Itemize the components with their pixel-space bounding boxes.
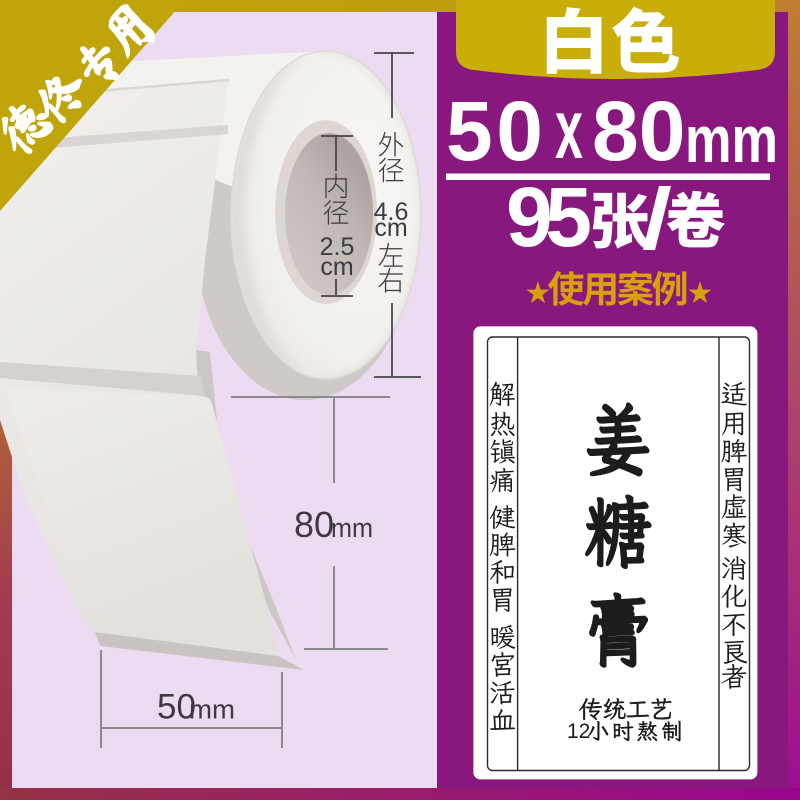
svg-text:★: ★ xyxy=(525,277,552,310)
svg-text:★: ★ xyxy=(687,277,714,310)
svg-text:12: 12 xyxy=(567,720,590,743)
svg-text:80: 80 xyxy=(294,504,334,545)
svg-text:80: 80 xyxy=(592,84,685,178)
svg-text:cm: cm xyxy=(320,253,353,281)
svg-text:cm: cm xyxy=(374,214,407,242)
svg-text:95: 95 xyxy=(506,170,592,264)
svg-text:x: x xyxy=(555,82,583,176)
svg-text:mm: mm xyxy=(685,102,778,176)
svg-text:mm: mm xyxy=(331,513,373,543)
svg-text:mm: mm xyxy=(189,695,235,725)
